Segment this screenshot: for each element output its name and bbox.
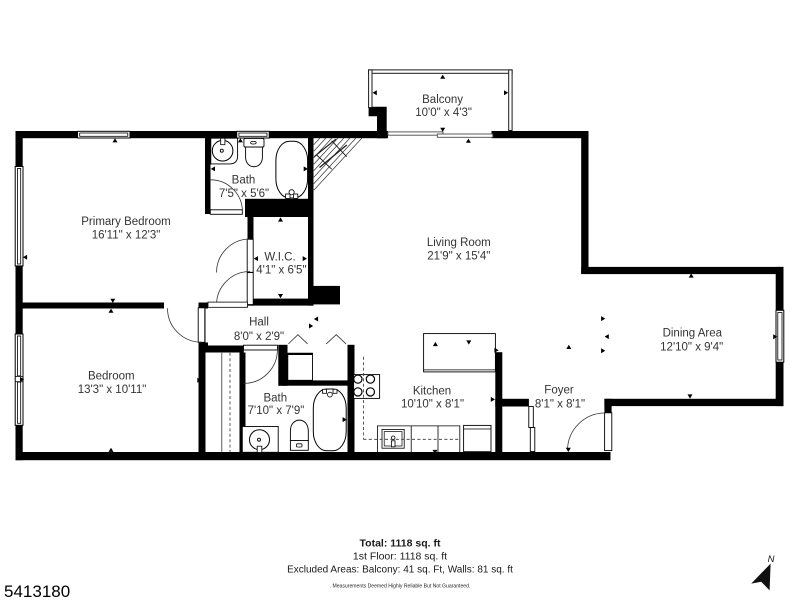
svg-text:W.I.C.: W.I.C. xyxy=(264,252,295,264)
svg-text:10'0" x 4'3": 10'0" x 4'3" xyxy=(415,107,472,119)
svg-text:Bath: Bath xyxy=(232,174,256,186)
svg-text:21'9" x 15'4": 21'9" x 15'4" xyxy=(427,251,490,263)
svg-text:Balcony: Balcony xyxy=(422,94,463,106)
svg-text:Dining Area: Dining Area xyxy=(663,327,723,339)
svg-text:Total: 1118 sq. ft: Total: 1118 sq. ft xyxy=(360,538,441,550)
svg-text:Primary Bedroom: Primary Bedroom xyxy=(81,216,170,228)
svg-text:Hall: Hall xyxy=(249,316,269,328)
svg-text:N: N xyxy=(768,554,775,565)
svg-text:10'10" x 8'1": 10'10" x 8'1" xyxy=(401,398,464,410)
svg-text:8'0" x 2'9": 8'0" x 2'9" xyxy=(234,331,284,343)
svg-text:8'1" x 8'1": 8'1" x 8'1" xyxy=(535,398,585,410)
svg-text:Foyer: Foyer xyxy=(544,385,574,397)
svg-text:Bedroom: Bedroom xyxy=(88,371,135,383)
svg-text:1st Floor: 1118 sq. ft: 1st Floor: 1118 sq. ft xyxy=(353,551,447,563)
svg-text:Living Room: Living Room xyxy=(427,237,491,249)
svg-text:Bath: Bath xyxy=(263,392,287,404)
svg-text:5413180: 5413180 xyxy=(4,582,70,600)
svg-text:Excluded Areas: Balcony: 41 sq: Excluded Areas: Balcony: 41 sq. Ft, Wall… xyxy=(287,564,513,575)
svg-text:7'5" x 5'6": 7'5" x 5'6" xyxy=(219,188,269,200)
svg-text:. Measurements Deemed Highly R: . Measurements Deemed Highly Reliable Bu… xyxy=(330,583,471,589)
svg-text:12'10" x 9'4": 12'10" x 9'4" xyxy=(660,342,723,354)
svg-text:16'11" x 12'3": 16'11" x 12'3" xyxy=(92,230,161,242)
svg-text:7'10" x 7'9": 7'10" x 7'9" xyxy=(248,405,305,417)
svg-text:4'1" x 6'5": 4'1" x 6'5" xyxy=(256,264,306,276)
svg-text:13'3" x 10'11": 13'3" x 10'11" xyxy=(78,384,147,396)
svg-text:Kitchen: Kitchen xyxy=(413,386,451,398)
